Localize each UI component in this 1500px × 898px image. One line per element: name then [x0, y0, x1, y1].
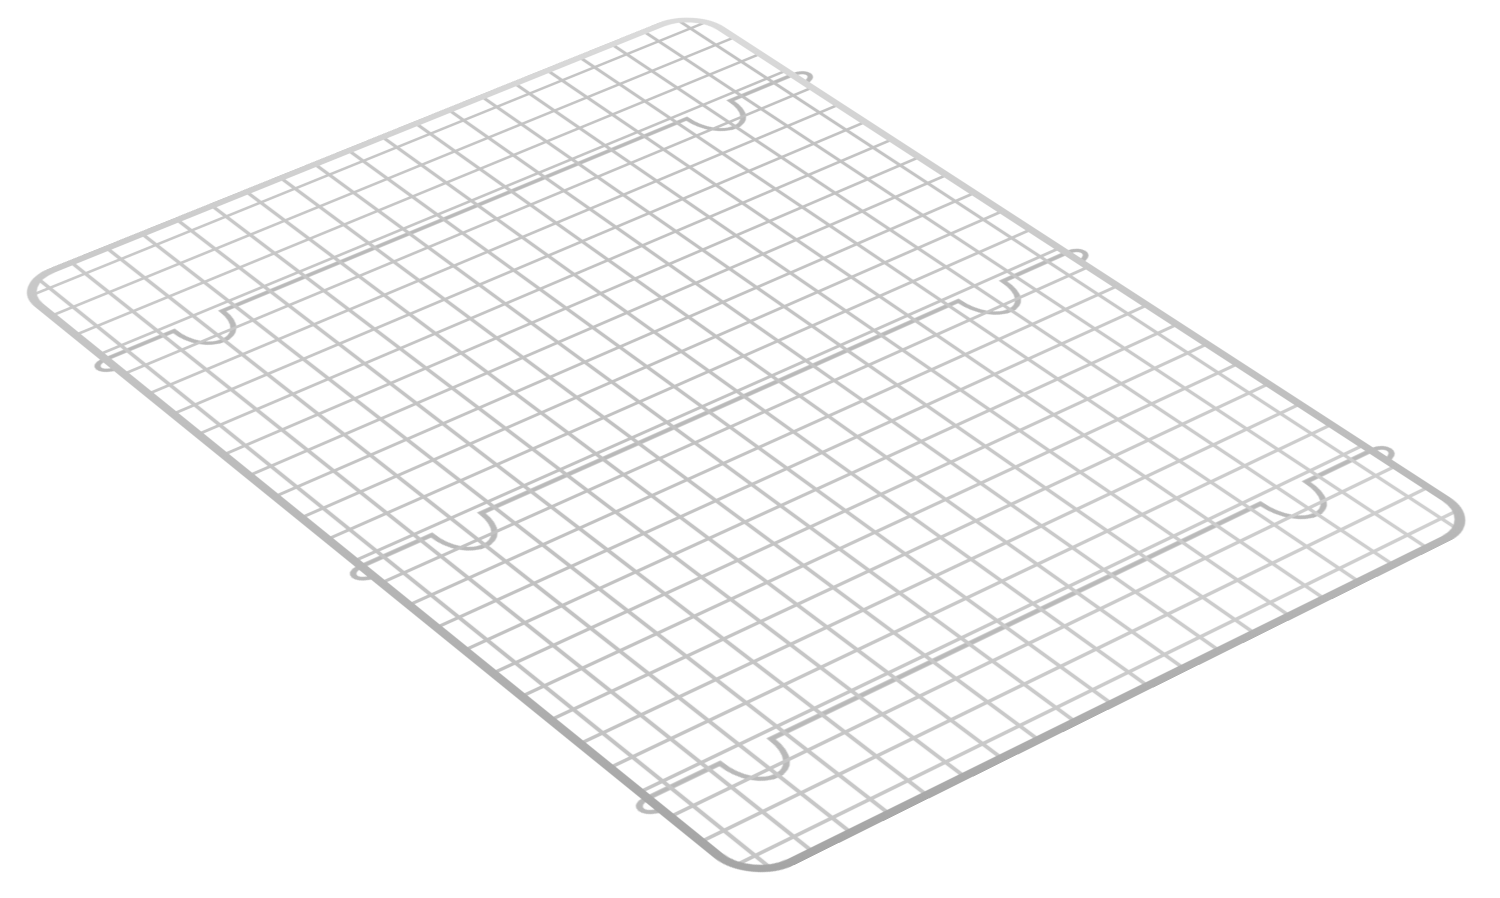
rack-grid	[21, 15, 1473, 877]
grid-wire-horizontal	[32, 22, 705, 295]
grid-wire-horizontal	[526, 366, 1234, 695]
product-photo	[0, 0, 1500, 898]
grid-wire-horizontal	[497, 346, 1203, 671]
grid-wire-horizontal	[253, 177, 943, 474]
grid-wire-horizontal	[386, 269, 1085, 581]
grid-wire-horizontal	[305, 213, 998, 516]
grid-wire-horizontal	[441, 307, 1143, 626]
grid-wire-horizontal	[332, 231, 1027, 537]
grid-wire-horizontal	[469, 326, 1173, 648]
page-background: { "scene": { "description": "Product pho…	[0, 0, 1500, 898]
grid-wire-horizontal	[413, 288, 1114, 604]
grid-wire-horizontal	[56, 39, 731, 314]
cooling-rack	[8, 8, 1488, 887]
rack-svg	[8, 8, 1488, 887]
grid-wire-horizontal	[359, 250, 1056, 559]
